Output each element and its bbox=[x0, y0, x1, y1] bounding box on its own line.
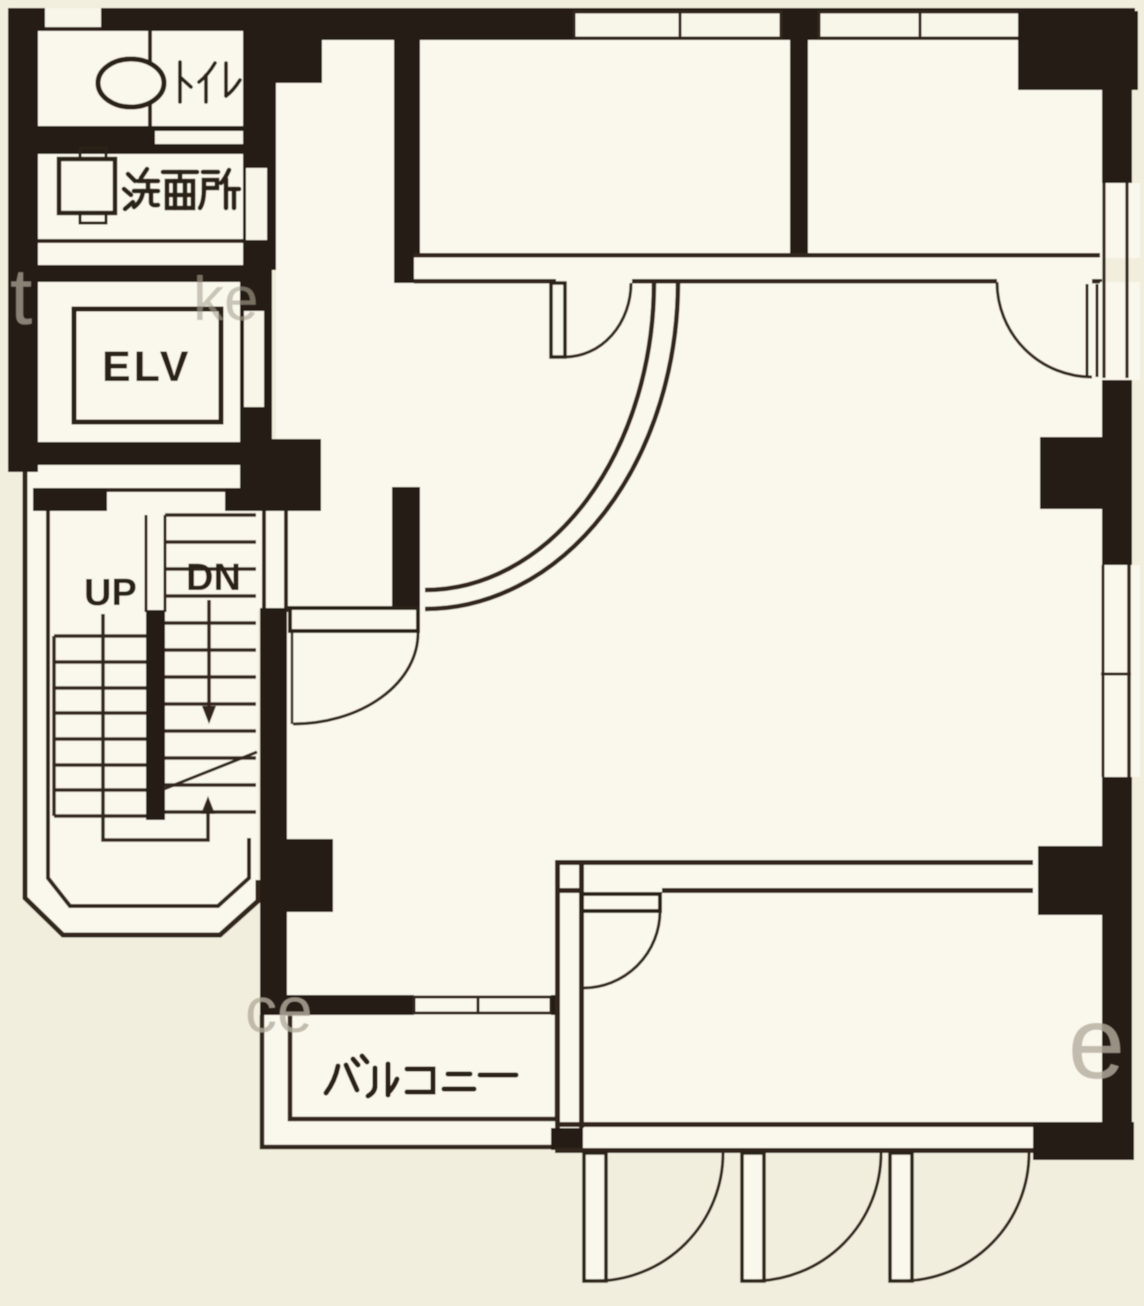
svg-text:ke: ke bbox=[193, 265, 258, 334]
svg-text:DN: DN bbox=[186, 557, 241, 599]
svg-text:UP: UP bbox=[84, 572, 137, 614]
svg-text:e: e bbox=[1068, 986, 1125, 1100]
svg-text:t: t bbox=[10, 252, 32, 341]
svg-text:ce: ce bbox=[245, 974, 313, 1046]
svg-text:ELV: ELV bbox=[102, 343, 191, 391]
